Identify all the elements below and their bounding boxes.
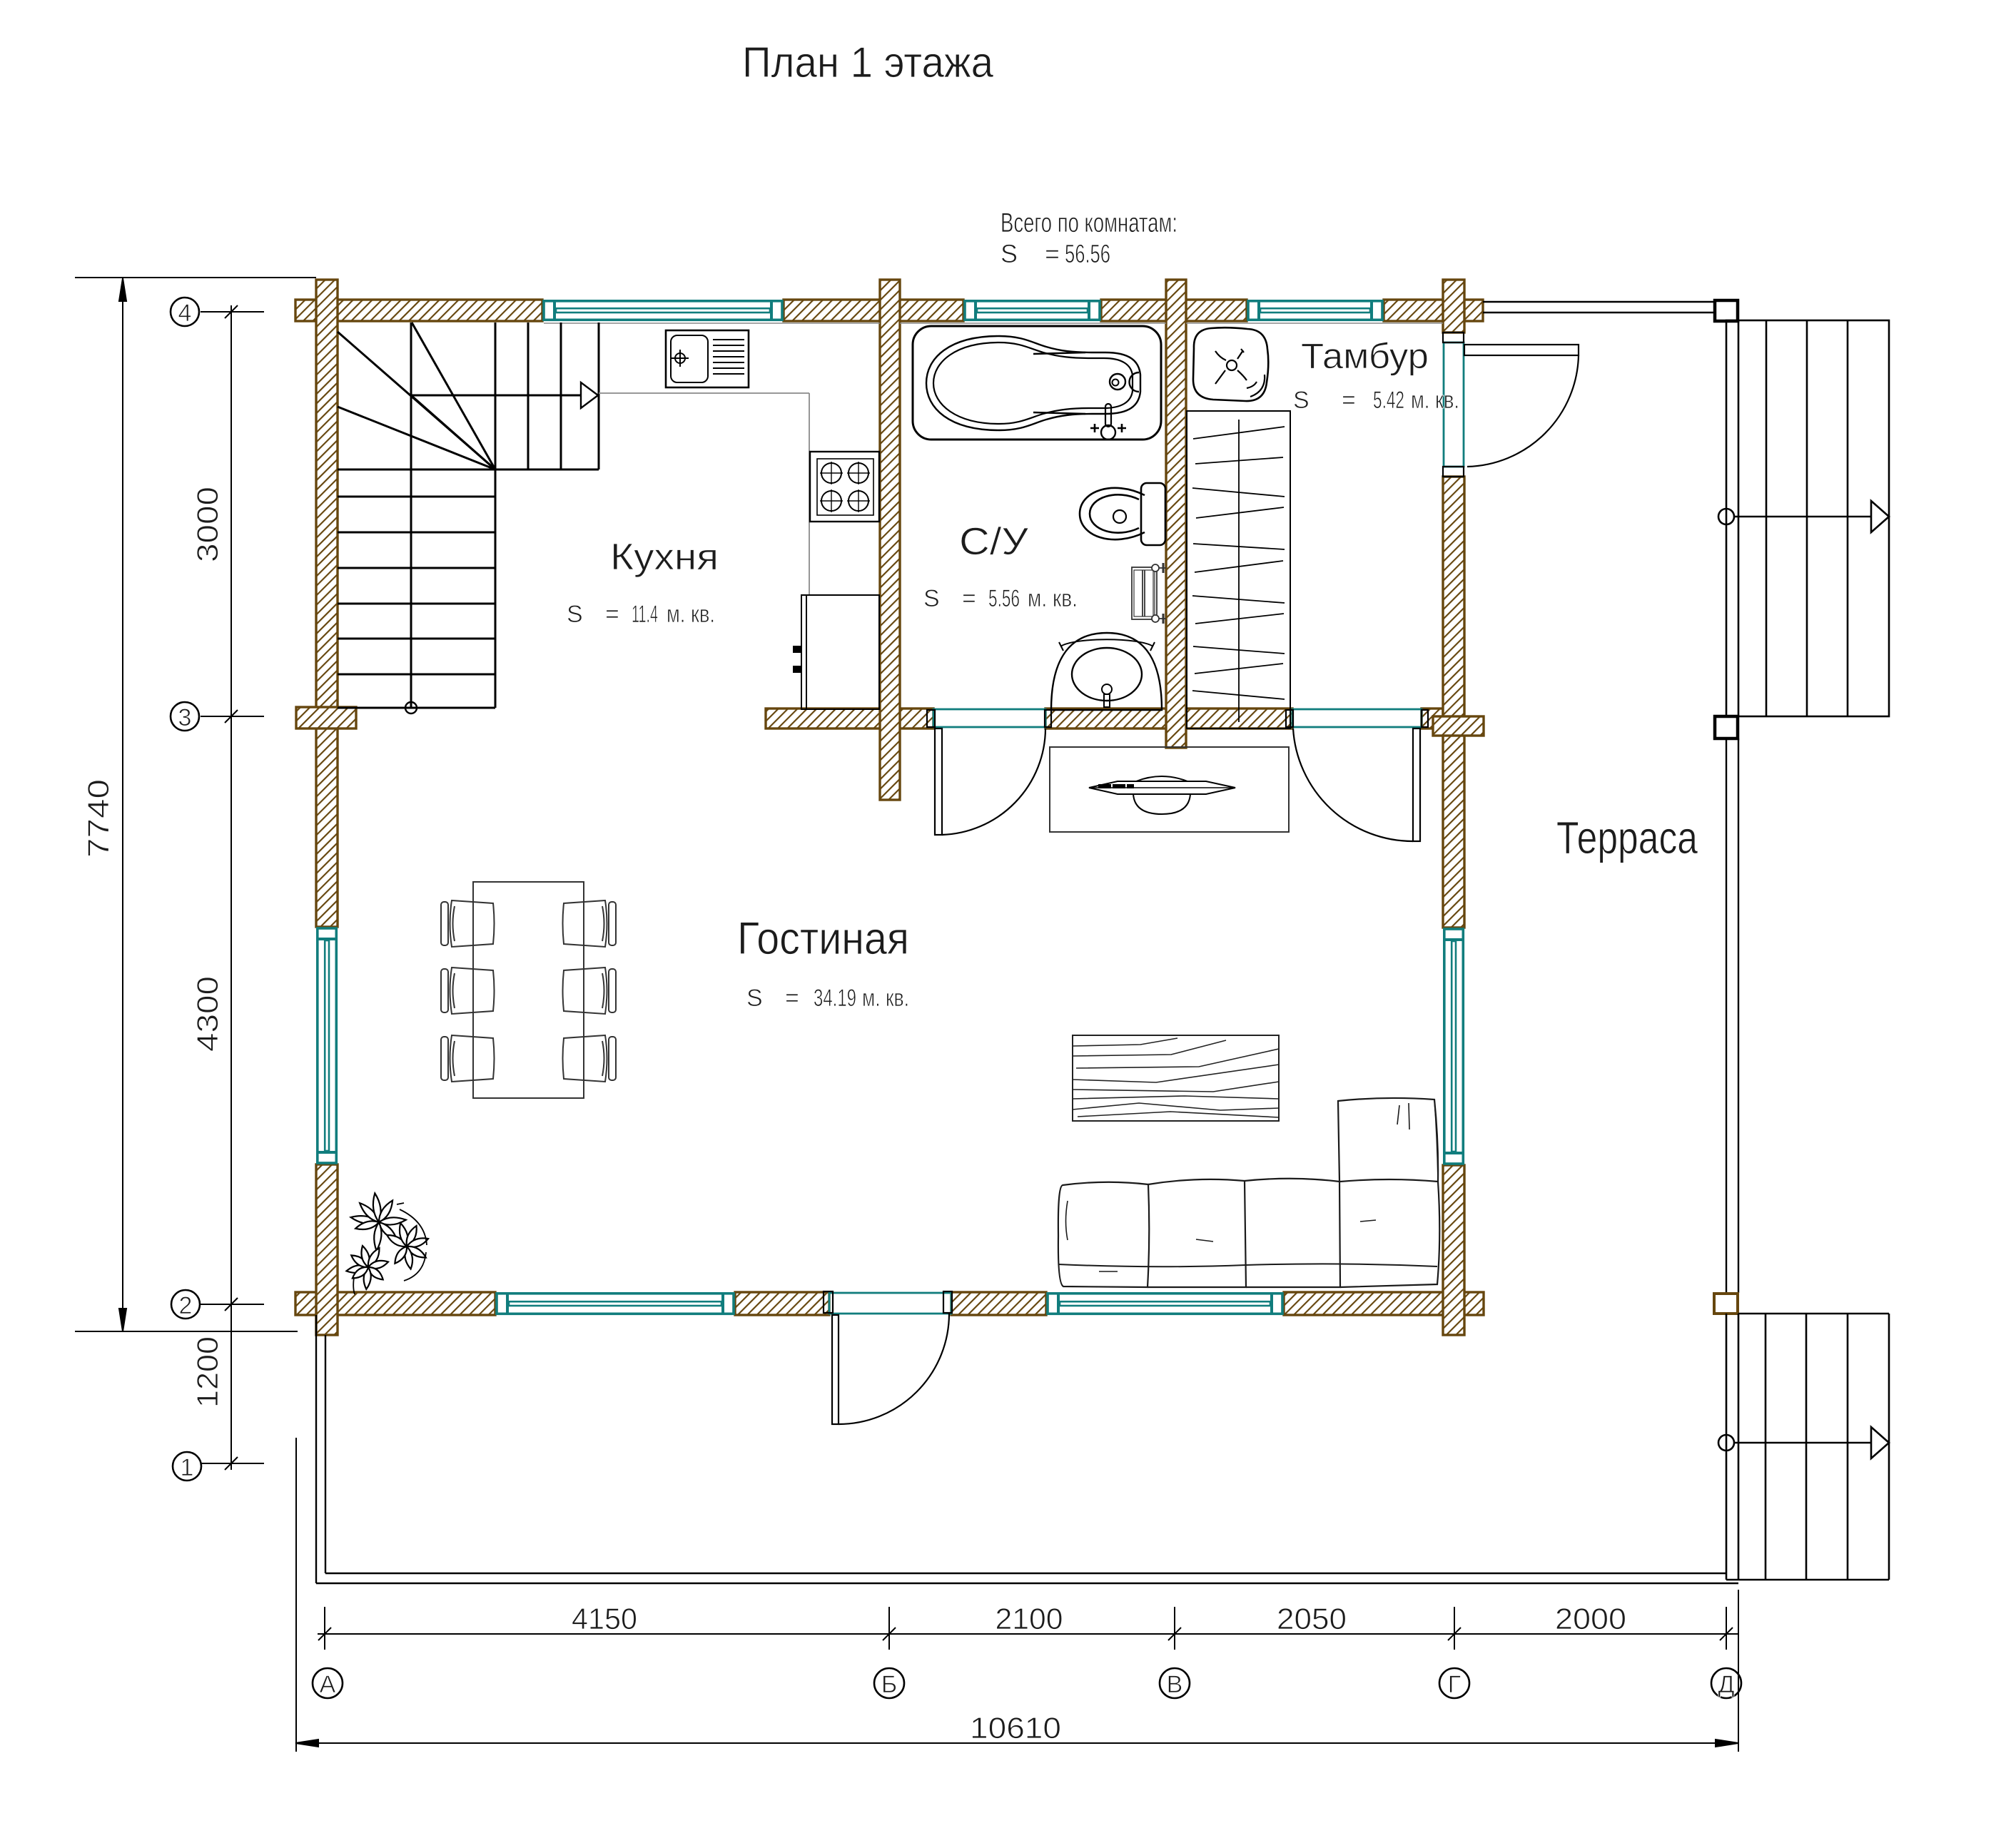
svg-text:м. кв.: м. кв. (862, 985, 909, 1012)
svg-text:1200: 1200 (191, 1336, 224, 1408)
svg-text:S: S (746, 985, 763, 1012)
svg-text:5.42: 5.42 (1373, 387, 1404, 414)
svg-text:Г: Г (1448, 1671, 1461, 1698)
svg-text:м. кв.: м. кв. (1411, 387, 1459, 414)
svg-text:10610: 10610 (970, 1711, 1061, 1745)
svg-text:7740: 7740 (81, 779, 115, 858)
svg-text:3000: 3000 (191, 487, 224, 562)
svg-text:м. кв.: м. кв. (667, 601, 715, 628)
svg-text:м. кв.: м. кв. (1028, 585, 1078, 612)
svg-text:=: = (605, 601, 619, 628)
svg-text:S: S (567, 601, 583, 628)
svg-text:4: 4 (178, 300, 192, 327)
svg-text:Д: Д (1718, 1671, 1734, 1698)
svg-text:5.56: 5.56 (988, 585, 1020, 612)
svg-text:С/У: С/У (959, 520, 1029, 563)
svg-text:S: S (1293, 387, 1310, 414)
svg-text:А: А (320, 1671, 336, 1698)
svg-text:В: В (1167, 1671, 1183, 1698)
svg-text:4300: 4300 (191, 976, 224, 1052)
svg-text:4150: 4150 (572, 1602, 637, 1635)
svg-text:11.4: 11.4 (632, 601, 658, 628)
svg-text:Всего по комнатам:: Всего по комнатам: (1001, 208, 1177, 238)
svg-text:План 1 этажа: План 1 этажа (742, 39, 994, 86)
svg-text:3: 3 (178, 704, 192, 731)
svg-text:2: 2 (179, 1292, 193, 1319)
svg-text:=: = (962, 585, 976, 612)
svg-text:2000: 2000 (1555, 1602, 1626, 1635)
svg-text:56.56: 56.56 (1065, 239, 1110, 268)
svg-text:2100: 2100 (996, 1602, 1063, 1635)
svg-text:S: S (1001, 239, 1018, 268)
svg-text:Терраса: Терраса (1556, 812, 1698, 863)
svg-text:Тамбур: Тамбур (1301, 336, 1429, 376)
svg-text:S: S (923, 585, 940, 612)
svg-text:Кухня: Кухня (610, 537, 719, 578)
svg-text:2050: 2050 (1277, 1602, 1347, 1635)
svg-text:=: = (1045, 239, 1060, 268)
svg-text:1: 1 (181, 1454, 194, 1481)
svg-text:=: = (1342, 387, 1356, 414)
svg-text:Б: Б (881, 1671, 897, 1698)
svg-text:34.19: 34.19 (814, 985, 856, 1012)
svg-text:=: = (785, 985, 799, 1012)
svg-text:Гостиная: Гостиная (737, 913, 909, 964)
